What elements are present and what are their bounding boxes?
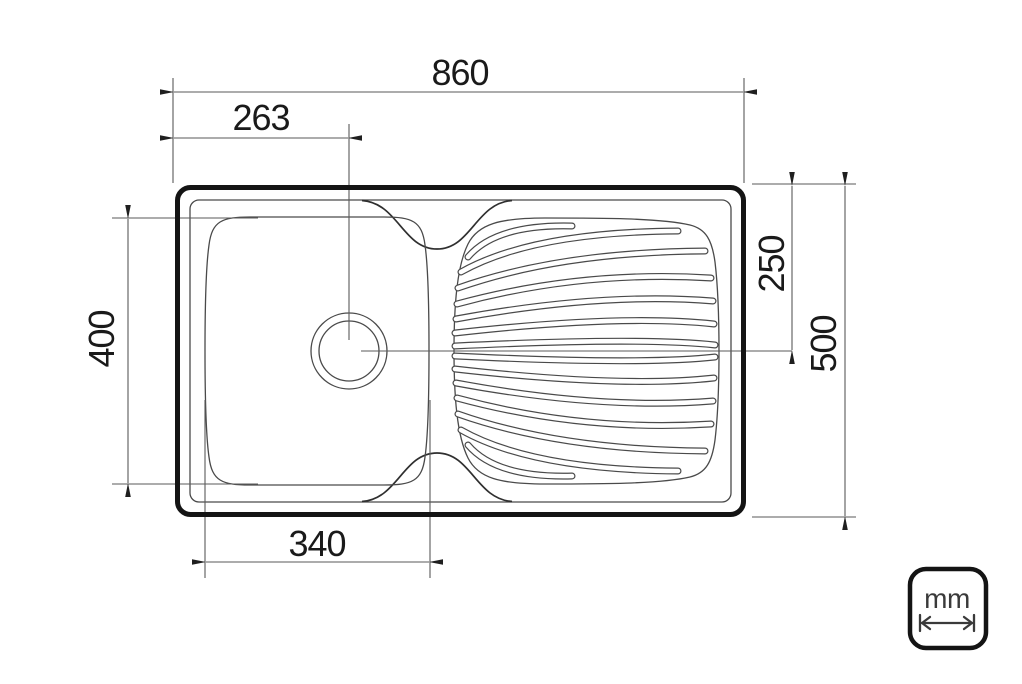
drainboard-rib [455, 321, 714, 333]
technical-drawing-canvas: 860 263 400 250 500 340 mm [0, 0, 1022, 684]
sink-dimension-drawing: 860 263 400 250 500 340 mm [0, 0, 1022, 684]
dimension-labels: 860 263 400 250 500 340 [81, 52, 844, 564]
label-drain-offset-x: 263 [232, 97, 289, 138]
label-overall-width: 860 [431, 52, 488, 93]
label-bowl-depth: 400 [81, 310, 122, 367]
unit-badge-label: mm [924, 583, 970, 614]
label-bowl-width: 340 [288, 523, 345, 564]
label-overall-depth: 500 [803, 315, 844, 372]
label-drain-offset-y: 250 [751, 235, 792, 292]
unit-badge: mm [910, 569, 986, 648]
drainboard-rib [455, 369, 714, 381]
